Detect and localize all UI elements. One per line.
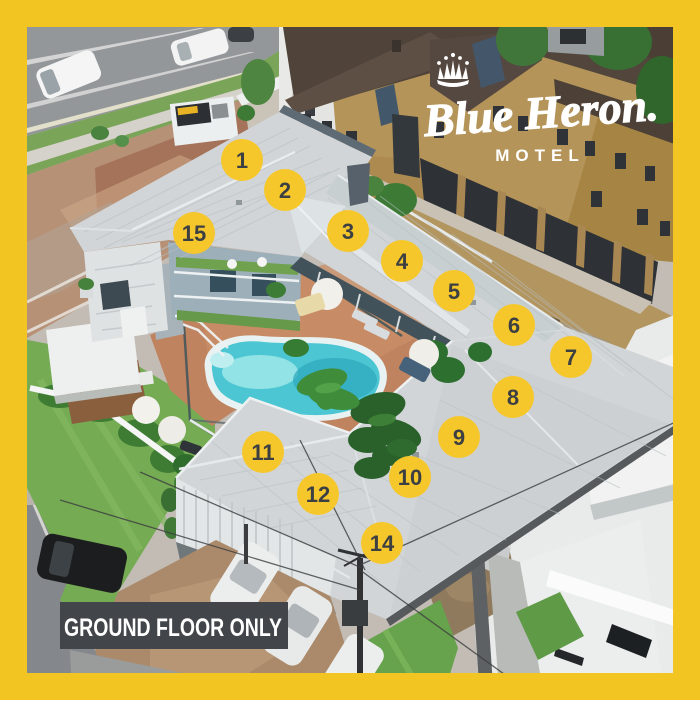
svg-text:9: 9 [453, 425, 465, 450]
svg-text:12: 12 [306, 482, 330, 507]
svg-text:5: 5 [448, 279, 460, 304]
svg-text:GROUND FLOOR ONLY: GROUND FLOOR ONLY [64, 614, 282, 642]
svg-text:14: 14 [370, 531, 395, 556]
svg-text:8: 8 [507, 385, 519, 410]
svg-text:11: 11 [251, 440, 274, 465]
svg-text:10: 10 [398, 465, 422, 490]
svg-text:6: 6 [508, 313, 520, 338]
svg-text:1: 1 [236, 148, 248, 173]
svg-text:15: 15 [182, 221, 206, 246]
svg-text:3: 3 [342, 219, 354, 244]
svg-text:MOTEL: MOTEL [495, 146, 585, 165]
svg-text:4: 4 [396, 249, 409, 274]
svg-text:7: 7 [565, 345, 577, 370]
svg-text:2: 2 [279, 178, 291, 203]
